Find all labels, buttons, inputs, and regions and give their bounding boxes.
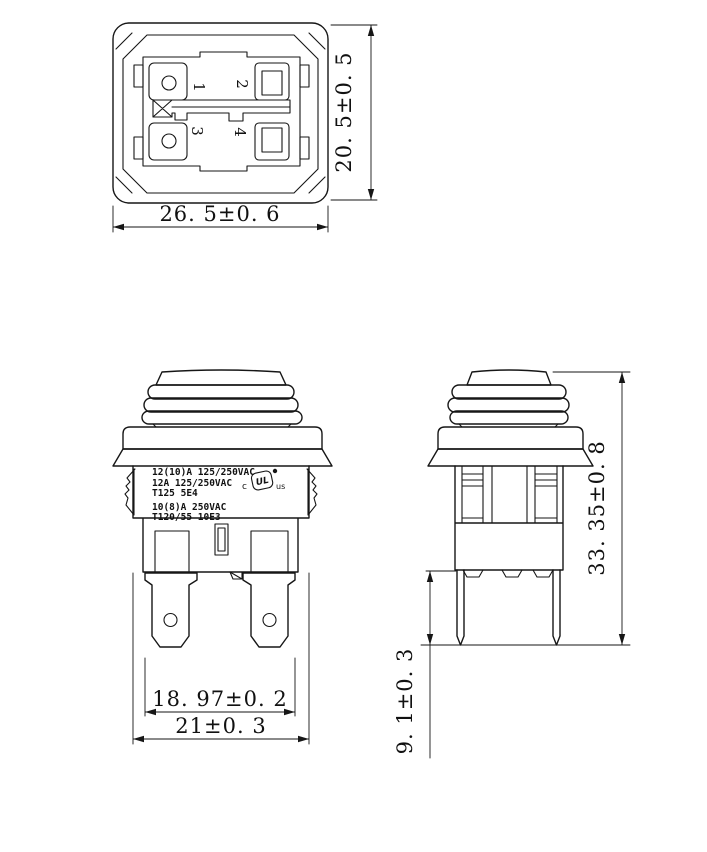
body-window-right	[251, 531, 288, 572]
bellows-rib-2	[144, 398, 298, 412]
center-slot-inner	[218, 528, 225, 551]
button-cap	[156, 370, 286, 385]
housing-inner-frame	[123, 35, 318, 193]
dim-width-label: 26. 5±0. 6	[159, 202, 280, 226]
terminal-number-3: 3	[188, 126, 206, 136]
bezel	[123, 427, 322, 449]
snap-clip-right	[307, 469, 317, 515]
bellows-rib-3	[142, 411, 302, 424]
dim-pin-length-label: 9. 1±0. 3	[393, 648, 417, 755]
terminal-hole-3	[162, 134, 176, 148]
dim-total-height-label: 33. 35±0. 8	[585, 440, 609, 575]
registered-dot-icon	[273, 469, 277, 473]
center-slot-outer	[215, 524, 228, 555]
dim-height-label: 20. 5±0. 5	[332, 51, 356, 172]
bellows-rib-3-side	[450, 411, 568, 424]
bottom-view: 1 2 3 4 26. 5±0. 6 20. 5±0. 5	[113, 23, 377, 232]
ul-logo-letters: UL	[255, 476, 270, 489]
button-cap-side	[467, 370, 551, 385]
pin-terminal-right	[553, 570, 560, 645]
side-view: 33. 35±0. 8 9. 1±0. 3	[393, 370, 630, 758]
body-bottom-notches	[463, 570, 553, 577]
pin-terminal-left	[457, 570, 464, 645]
front-view: 12(10)A 125/250VAC 12A 125/250VAC T125 5…	[113, 370, 332, 744]
bellows-rib-2-side	[448, 398, 569, 412]
spade-terminal-left	[145, 573, 197, 647]
cert-us-label: us	[276, 482, 285, 491]
terminal-pad-3	[149, 123, 187, 160]
terminal-wire-hole-right	[263, 614, 276, 627]
mounting-flange-side	[428, 449, 593, 466]
terminal-number-4: 4	[231, 127, 249, 137]
center-latch-bar	[153, 100, 290, 121]
terminal-slot-2	[262, 71, 282, 95]
spade-terminal-right	[243, 573, 295, 647]
terminal-number-1: 1	[190, 82, 208, 92]
mounting-flange	[113, 449, 332, 466]
side-tabs	[134, 65, 309, 159]
dim-body-width-label: 21±0. 3	[175, 714, 266, 738]
dim-pin-length-lines	[426, 571, 456, 758]
terminal-hole-1	[162, 76, 176, 90]
snap-clip-left	[125, 469, 135, 515]
rating-line-1: 12(10)A 125/250VAC	[152, 467, 255, 478]
terminal-pad-1	[149, 63, 187, 100]
terminal-slot-4	[262, 128, 282, 152]
dim-terminal-span-label: 18. 97±0. 2	[152, 687, 287, 711]
rating-line-5: T120/55 10E3	[152, 512, 221, 523]
bezel-side	[438, 427, 583, 449]
cert-c-label: c	[242, 482, 247, 492]
bellows-rib-1	[148, 385, 294, 399]
drawing-sheet: 1 2 3 4 26. 5±0. 6 20. 5±0. 5 12(10	[0, 0, 707, 852]
switch-drawing: 1 2 3 4 26. 5±0. 6 20. 5±0. 5 12(10	[0, 0, 707, 852]
center-tab	[230, 572, 242, 579]
rating-line-3: T125 5E4	[152, 488, 198, 499]
body-groove-rungs	[462, 474, 557, 518]
bellows-rib-1-side	[452, 385, 566, 399]
terminal-number-2: 2	[233, 79, 251, 89]
body-window-left	[155, 531, 189, 572]
terminal-wire-hole-left	[164, 614, 177, 627]
